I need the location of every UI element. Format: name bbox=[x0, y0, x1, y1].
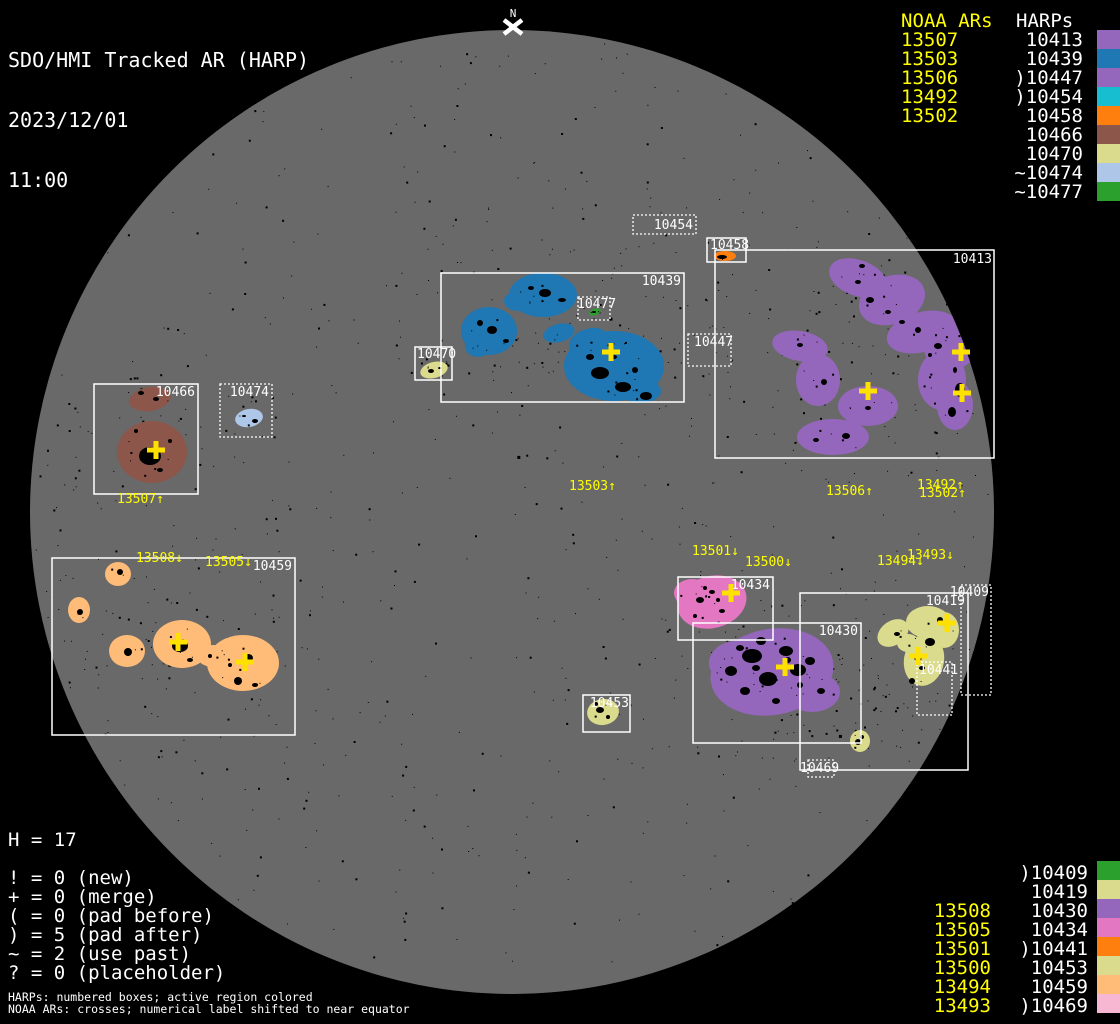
legend-tr-harp-10477: ~10477 bbox=[1005, 183, 1083, 202]
noaa-disk-label-13503: 13503↑ bbox=[569, 479, 616, 494]
legend-top-right-harp-column: 1041310439)10447)10454104581046610470~10… bbox=[1005, 31, 1083, 202]
harp-box-label-10439: 10439 bbox=[642, 274, 681, 289]
legend-br-swatch-10419 bbox=[1097, 880, 1120, 899]
harp-box-label-10447: 10447 bbox=[694, 335, 733, 350]
legend-br-swatch-10434 bbox=[1097, 918, 1120, 937]
legend-tr-swatch-10477 bbox=[1097, 182, 1120, 201]
legend-br-noaa-10409 bbox=[920, 864, 991, 883]
harp-box-label-10430: 10430 bbox=[819, 624, 858, 639]
noaa-disk-label-13506: 13506↑ bbox=[826, 484, 873, 499]
noaa-disk-label-13505: 13505↓ bbox=[205, 555, 252, 570]
legend-tr-swatch-10439 bbox=[1097, 49, 1120, 68]
harp-box-label-10458: 10458 bbox=[710, 238, 749, 253]
north-marker: N bbox=[504, 7, 522, 34]
harp-box-label-10409: 10409 bbox=[950, 585, 989, 600]
legend-br-swatch-10459 bbox=[1097, 975, 1120, 994]
noaa-disk-label-13500: 13500↓ bbox=[745, 555, 792, 570]
legend-tr-swatch-10447 bbox=[1097, 68, 1120, 87]
noaa-disk-label-13507: 13507↑ bbox=[117, 492, 164, 507]
footnote-noaa: NOAA ARs: crosses; numerical label shift… bbox=[8, 1003, 410, 1015]
symbol-stat-line-5: ? = 0 (placeholder) bbox=[8, 964, 225, 983]
legend-br-swatch-10441 bbox=[1097, 937, 1120, 956]
harp-box-label-10474: 10474 bbox=[230, 385, 269, 400]
noaa-disk-label-13501: 13501↓ bbox=[692, 544, 739, 559]
time-label: 11:00 bbox=[8, 170, 309, 190]
harp-box-label-10466: 10466 bbox=[156, 385, 195, 400]
legend-br-swatch-10469 bbox=[1097, 994, 1120, 1013]
legend-bottom-right-noaa-column: 135081350513501135001349413493 bbox=[920, 864, 991, 1016]
noaa-disk-label-13502: 13502↑ bbox=[919, 486, 966, 501]
legend-top-right-noaa-column: 1350713503135061349213502 bbox=[901, 31, 958, 202]
north-label: N bbox=[510, 7, 517, 20]
harp-box-label-10469: 10469 bbox=[800, 761, 839, 776]
legend-tr-noaa-10477 bbox=[901, 183, 958, 202]
harp-box-label-10413: 10413 bbox=[953, 252, 992, 267]
harp-box-label-10453: 10453 bbox=[590, 696, 629, 711]
harp-box-label-10459: 10459 bbox=[253, 559, 292, 574]
harp-box-label-10477: 10477 bbox=[577, 297, 616, 312]
noaa-disk-label-13508: 13508↓ bbox=[136, 551, 183, 566]
legend-tr-swatch-10413 bbox=[1097, 30, 1120, 49]
legend-br-swatch-10409 bbox=[1097, 861, 1120, 880]
legend-tr-noaa-10470 bbox=[901, 145, 958, 164]
legend-tr-swatch-10470 bbox=[1097, 144, 1120, 163]
harp-count: H = 17 bbox=[8, 831, 77, 850]
symbol-stats-list: ! = 0 (new)+ = 0 (merge)( = 0 (pad befor… bbox=[8, 869, 225, 983]
legend-br-noaa-10469: 13493 bbox=[920, 997, 991, 1016]
harp-tracker-screen: 1041310439104541045810447104771047010466… bbox=[0, 0, 1120, 1024]
harp-box-label-10470: 10470 bbox=[417, 347, 456, 362]
title-block: SDO/HMI Tracked AR (HARP) 2023/12/01 11:… bbox=[8, 10, 309, 230]
legend-bottom-right-harp-column: )10409104191043010434)104411045310459)10… bbox=[1010, 864, 1088, 1016]
date-label: 2023/12/01 bbox=[8, 110, 309, 130]
legend-br-harp-10469: )10469 bbox=[1010, 997, 1088, 1016]
legend-tr-noaa-10458: 13502 bbox=[901, 107, 958, 126]
legend-br-swatch-10453 bbox=[1097, 956, 1120, 975]
legend-tr-swatch-10458 bbox=[1097, 106, 1120, 125]
legend-tr-swatch-10454 bbox=[1097, 87, 1120, 106]
legend-br-swatch-10430 bbox=[1097, 899, 1120, 918]
legend-tr-noaa-10474 bbox=[901, 164, 958, 183]
harp-box-label-10441: 10441 bbox=[919, 663, 958, 678]
legend-tr-noaa-10466 bbox=[901, 126, 958, 145]
harp-box-label-10454: 10454 bbox=[654, 218, 693, 233]
legend-bottom-right-color-swatches bbox=[1097, 861, 1120, 1013]
legend-tr-swatch-10474 bbox=[1097, 163, 1120, 182]
legend-top-right-color-swatches bbox=[1097, 30, 1120, 201]
app-title: SDO/HMI Tracked AR (HARP) bbox=[8, 50, 309, 70]
legend-tr-swatch-10466 bbox=[1097, 125, 1120, 144]
noaa-disk-label-13493: 13493↓ bbox=[907, 548, 954, 563]
